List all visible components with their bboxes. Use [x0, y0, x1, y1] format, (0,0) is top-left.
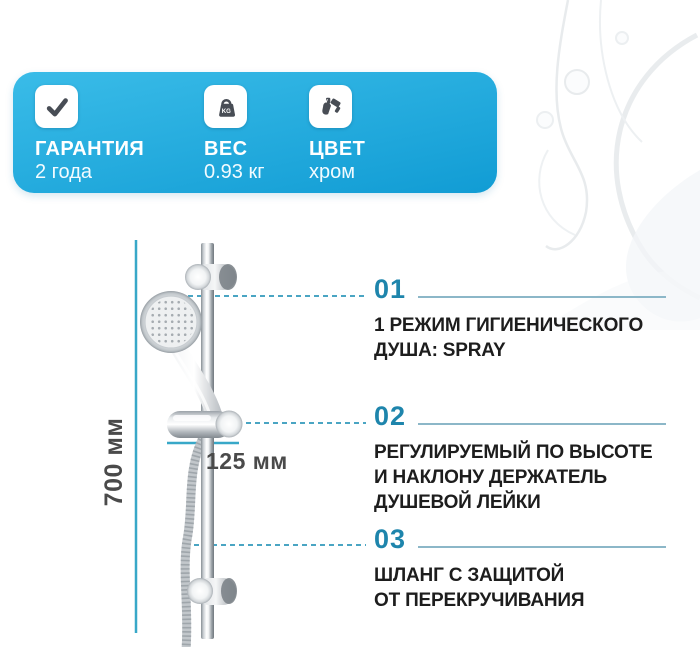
spec-weight: KG ВЕС 0.93 кг [204, 85, 265, 184]
slider-holder [167, 411, 243, 439]
weight-icon-kg-text: KG [221, 109, 230, 115]
feature-03-rule [418, 546, 666, 548]
height-dimension-label: 700 мм [100, 387, 128, 537]
feature-02-text: РЕГУЛИРУЕМЫЙ ПО ВЫСОТЕ И НАКЛОНУ ДЕРЖАТЕ… [374, 440, 666, 515]
spec-weight-value: 0.93 кг [204, 160, 265, 184]
spec-color-value: хром [309, 160, 365, 184]
spec-warranty-value: 2 года [35, 160, 144, 184]
feature-03-number: 03 [374, 525, 406, 553]
shower-hose [185, 436, 204, 647]
feature-01-text: 1 РЕЖИМ ГИГИЕНИЧЕСКОГО ДУША: SPRAY [374, 313, 666, 363]
spec-warranty-label: ГАРАНТИЯ [35, 138, 144, 160]
leader-lines [188, 296, 366, 545]
spec-color-label: ЦВЕТ [309, 138, 365, 160]
feature-03-text: ШЛАНГ С ЗАЩИТОЙ ОТ ПЕРЕКРУЧИВАНИЯ [374, 563, 666, 613]
feature-02: 02 РЕГУЛИРУЕМЫЙ ПО ВЫСОТЕ И НАКЛОНУ ДЕРЖ… [374, 402, 666, 515]
paint-brush-icon [309, 85, 352, 128]
product-infographic: ГАРАНТИЯ 2 года KG ВЕС 0.93 кг [0, 0, 700, 647]
bottom-wall-mount [187, 578, 237, 605]
check-icon [35, 85, 78, 128]
width-dimension-label: 125 мм [206, 448, 288, 475]
spec-weight-label: ВЕС [204, 138, 265, 160]
spec-warranty: ГАРАНТИЯ 2 года [35, 85, 144, 184]
shower-rail [201, 243, 214, 639]
weight-icon: KG [204, 85, 247, 128]
hand-shower-handle [173, 346, 214, 414]
specs-banner: ГАРАНТИЯ 2 года KG ВЕС 0.93 кг [13, 72, 497, 193]
feature-01-number: 01 [374, 275, 406, 303]
top-wall-mount [185, 264, 237, 290]
feature-01: 01 1 РЕЖИМ ГИГИЕНИЧЕСКОГО ДУША: SPRAY [374, 275, 666, 363]
spec-color: ЦВЕТ хром [309, 85, 365, 184]
feature-01-rule [418, 296, 666, 298]
feature-03: 03 ШЛАНГ С ЗАЩИТОЙ ОТ ПЕРЕКРУЧИВАНИЯ [374, 525, 666, 613]
feature-02-number: 02 [374, 402, 406, 430]
feature-02-rule [418, 423, 666, 425]
shower-head [140, 291, 202, 353]
